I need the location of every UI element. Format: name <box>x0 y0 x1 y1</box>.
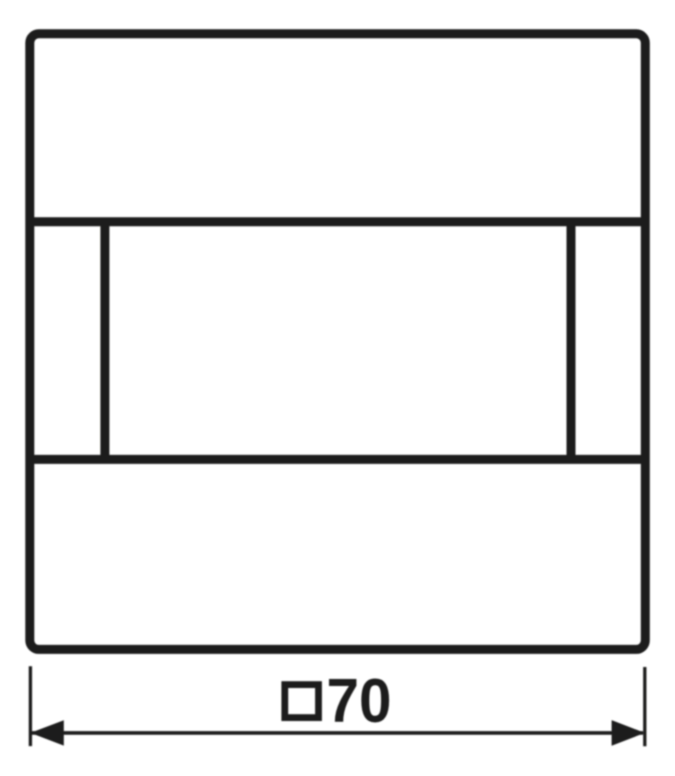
svg-text:70: 70 <box>327 667 392 736</box>
